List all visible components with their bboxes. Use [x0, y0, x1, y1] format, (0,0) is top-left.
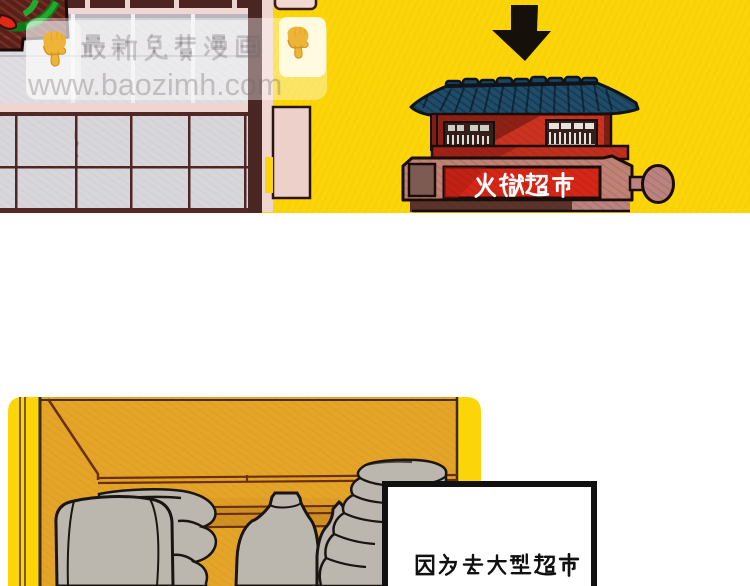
svg-text:www.baozimh.com: www.baozimh.com	[27, 68, 282, 102]
